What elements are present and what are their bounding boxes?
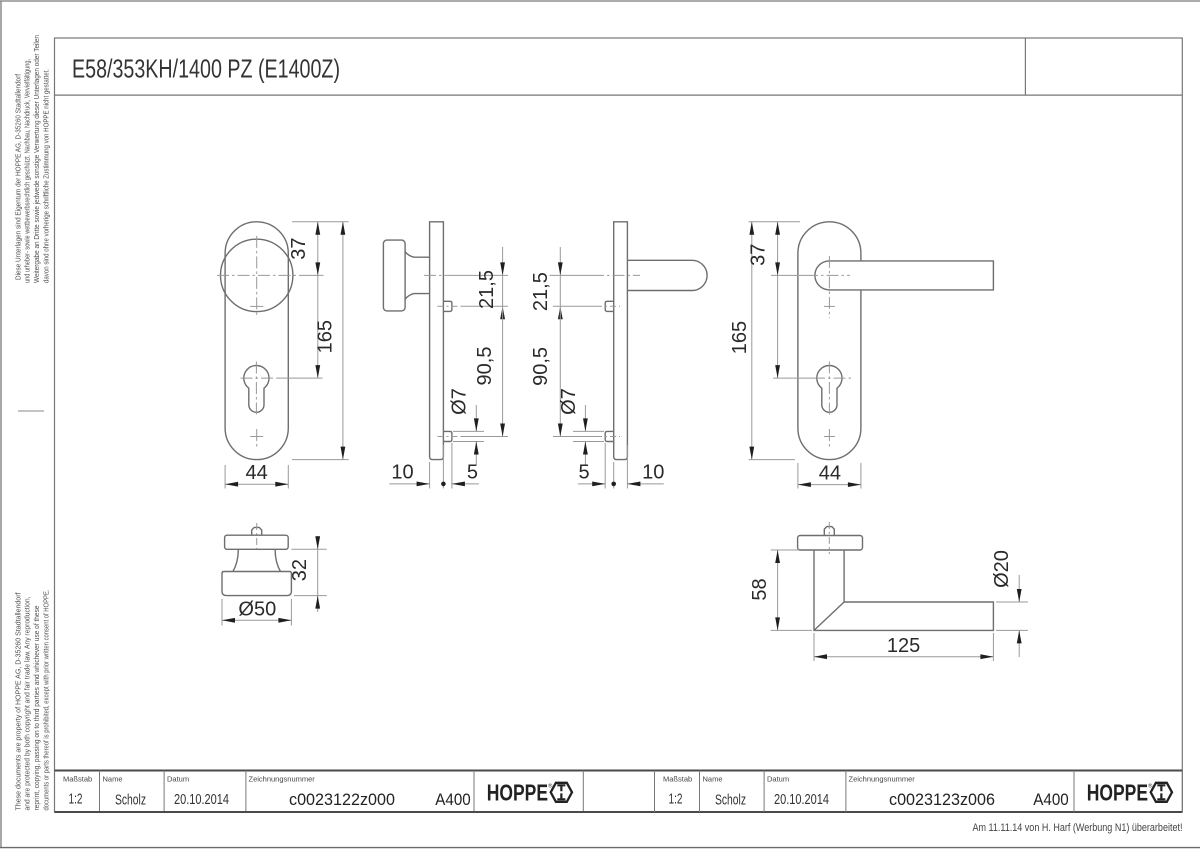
svg-text:Ø7: Ø7 bbox=[558, 388, 580, 415]
svg-text:125: 125 bbox=[887, 635, 920, 657]
svg-text:Datum: Datum bbox=[167, 775, 189, 784]
svg-text:20.10.2014: 20.10.2014 bbox=[174, 792, 229, 808]
svg-text:Weitergabe an Dritte sowie jed: Weitergabe an Dritte sowie jedwede sonst… bbox=[32, 35, 41, 283]
svg-text:Datum: Datum bbox=[767, 775, 789, 784]
svg-text:165: 165 bbox=[314, 320, 336, 353]
svg-text:44: 44 bbox=[819, 463, 841, 485]
svg-text:E58/353KH/1400 PZ (E1400Z): E58/353KH/1400 PZ (E1400Z) bbox=[72, 56, 340, 84]
svg-text:44: 44 bbox=[245, 462, 267, 484]
svg-text:1:2: 1:2 bbox=[69, 791, 83, 808]
svg-text:Ø20: Ø20 bbox=[991, 550, 1013, 588]
svg-text:32: 32 bbox=[289, 559, 311, 581]
svg-text:Scholz: Scholz bbox=[115, 793, 146, 809]
svg-text:10: 10 bbox=[391, 461, 413, 483]
svg-text:5: 5 bbox=[467, 461, 478, 483]
svg-text:These documents are property o: These documents are property of HOPPE AG… bbox=[13, 593, 22, 811]
svg-text:Zeichnungsnummer: Zeichnungsnummer bbox=[249, 775, 316, 784]
svg-text:5: 5 bbox=[578, 461, 589, 483]
svg-text:and are protected by both copy: and are protected by both copyright and … bbox=[23, 597, 32, 811]
svg-text:Ø50: Ø50 bbox=[238, 599, 276, 621]
svg-text:37: 37 bbox=[288, 237, 310, 259]
svg-text:37: 37 bbox=[748, 244, 770, 266]
svg-text:davon sind ohne vorherige schr: davon sind ohne vorherige schriftliche Z… bbox=[41, 69, 50, 283]
svg-text:Ø7: Ø7 bbox=[449, 388, 471, 415]
svg-text:A400: A400 bbox=[1033, 791, 1068, 809]
svg-text:reprint, copying, passing on t: reprint, copying, passing on to third pa… bbox=[32, 606, 41, 811]
svg-text:21,5: 21,5 bbox=[530, 272, 552, 311]
svg-text:20.10.2014: 20.10.2014 bbox=[774, 792, 829, 808]
svg-text:Maßstab: Maßstab bbox=[63, 775, 92, 784]
svg-text:Diese Unterlagen sind Eigentum: Diese Unterlagen sind Eigentum der HOPPE… bbox=[13, 74, 22, 280]
svg-text:58: 58 bbox=[749, 578, 771, 600]
svg-text:documents or parts thereof is: documents or parts thereof is prohibited… bbox=[41, 590, 50, 811]
svg-text:90,5: 90,5 bbox=[474, 347, 496, 386]
svg-text:Name: Name bbox=[103, 775, 123, 784]
svg-text:Name: Name bbox=[703, 775, 723, 784]
svg-text:Zeichnungsnummer: Zeichnungsnummer bbox=[849, 775, 916, 784]
svg-text:c0023123z006: c0023123z006 bbox=[889, 791, 995, 809]
svg-text:c0023122z000: c0023122z000 bbox=[289, 791, 395, 809]
svg-text:und urheber- sowie wettbewerbs: und urheber- sowie wettbewerbsrechtlich … bbox=[23, 59, 32, 283]
svg-text:Scholz: Scholz bbox=[715, 793, 746, 809]
svg-text:10: 10 bbox=[642, 461, 664, 483]
svg-text:Am 11.11.14 von H. Harf (Werbu: Am 11.11.14 von H. Harf (Werbung N1) übe… bbox=[973, 822, 1183, 834]
svg-text:Maßstab: Maßstab bbox=[663, 775, 692, 784]
svg-text:90,5: 90,5 bbox=[530, 347, 552, 386]
svg-text:HOPPE: HOPPE bbox=[1087, 779, 1148, 805]
svg-text:HOPPE: HOPPE bbox=[487, 779, 548, 805]
svg-text:165: 165 bbox=[729, 321, 751, 354]
svg-text:21,5: 21,5 bbox=[476, 270, 498, 309]
svg-text:A400: A400 bbox=[435, 791, 470, 809]
svg-text:1:2: 1:2 bbox=[669, 791, 683, 808]
